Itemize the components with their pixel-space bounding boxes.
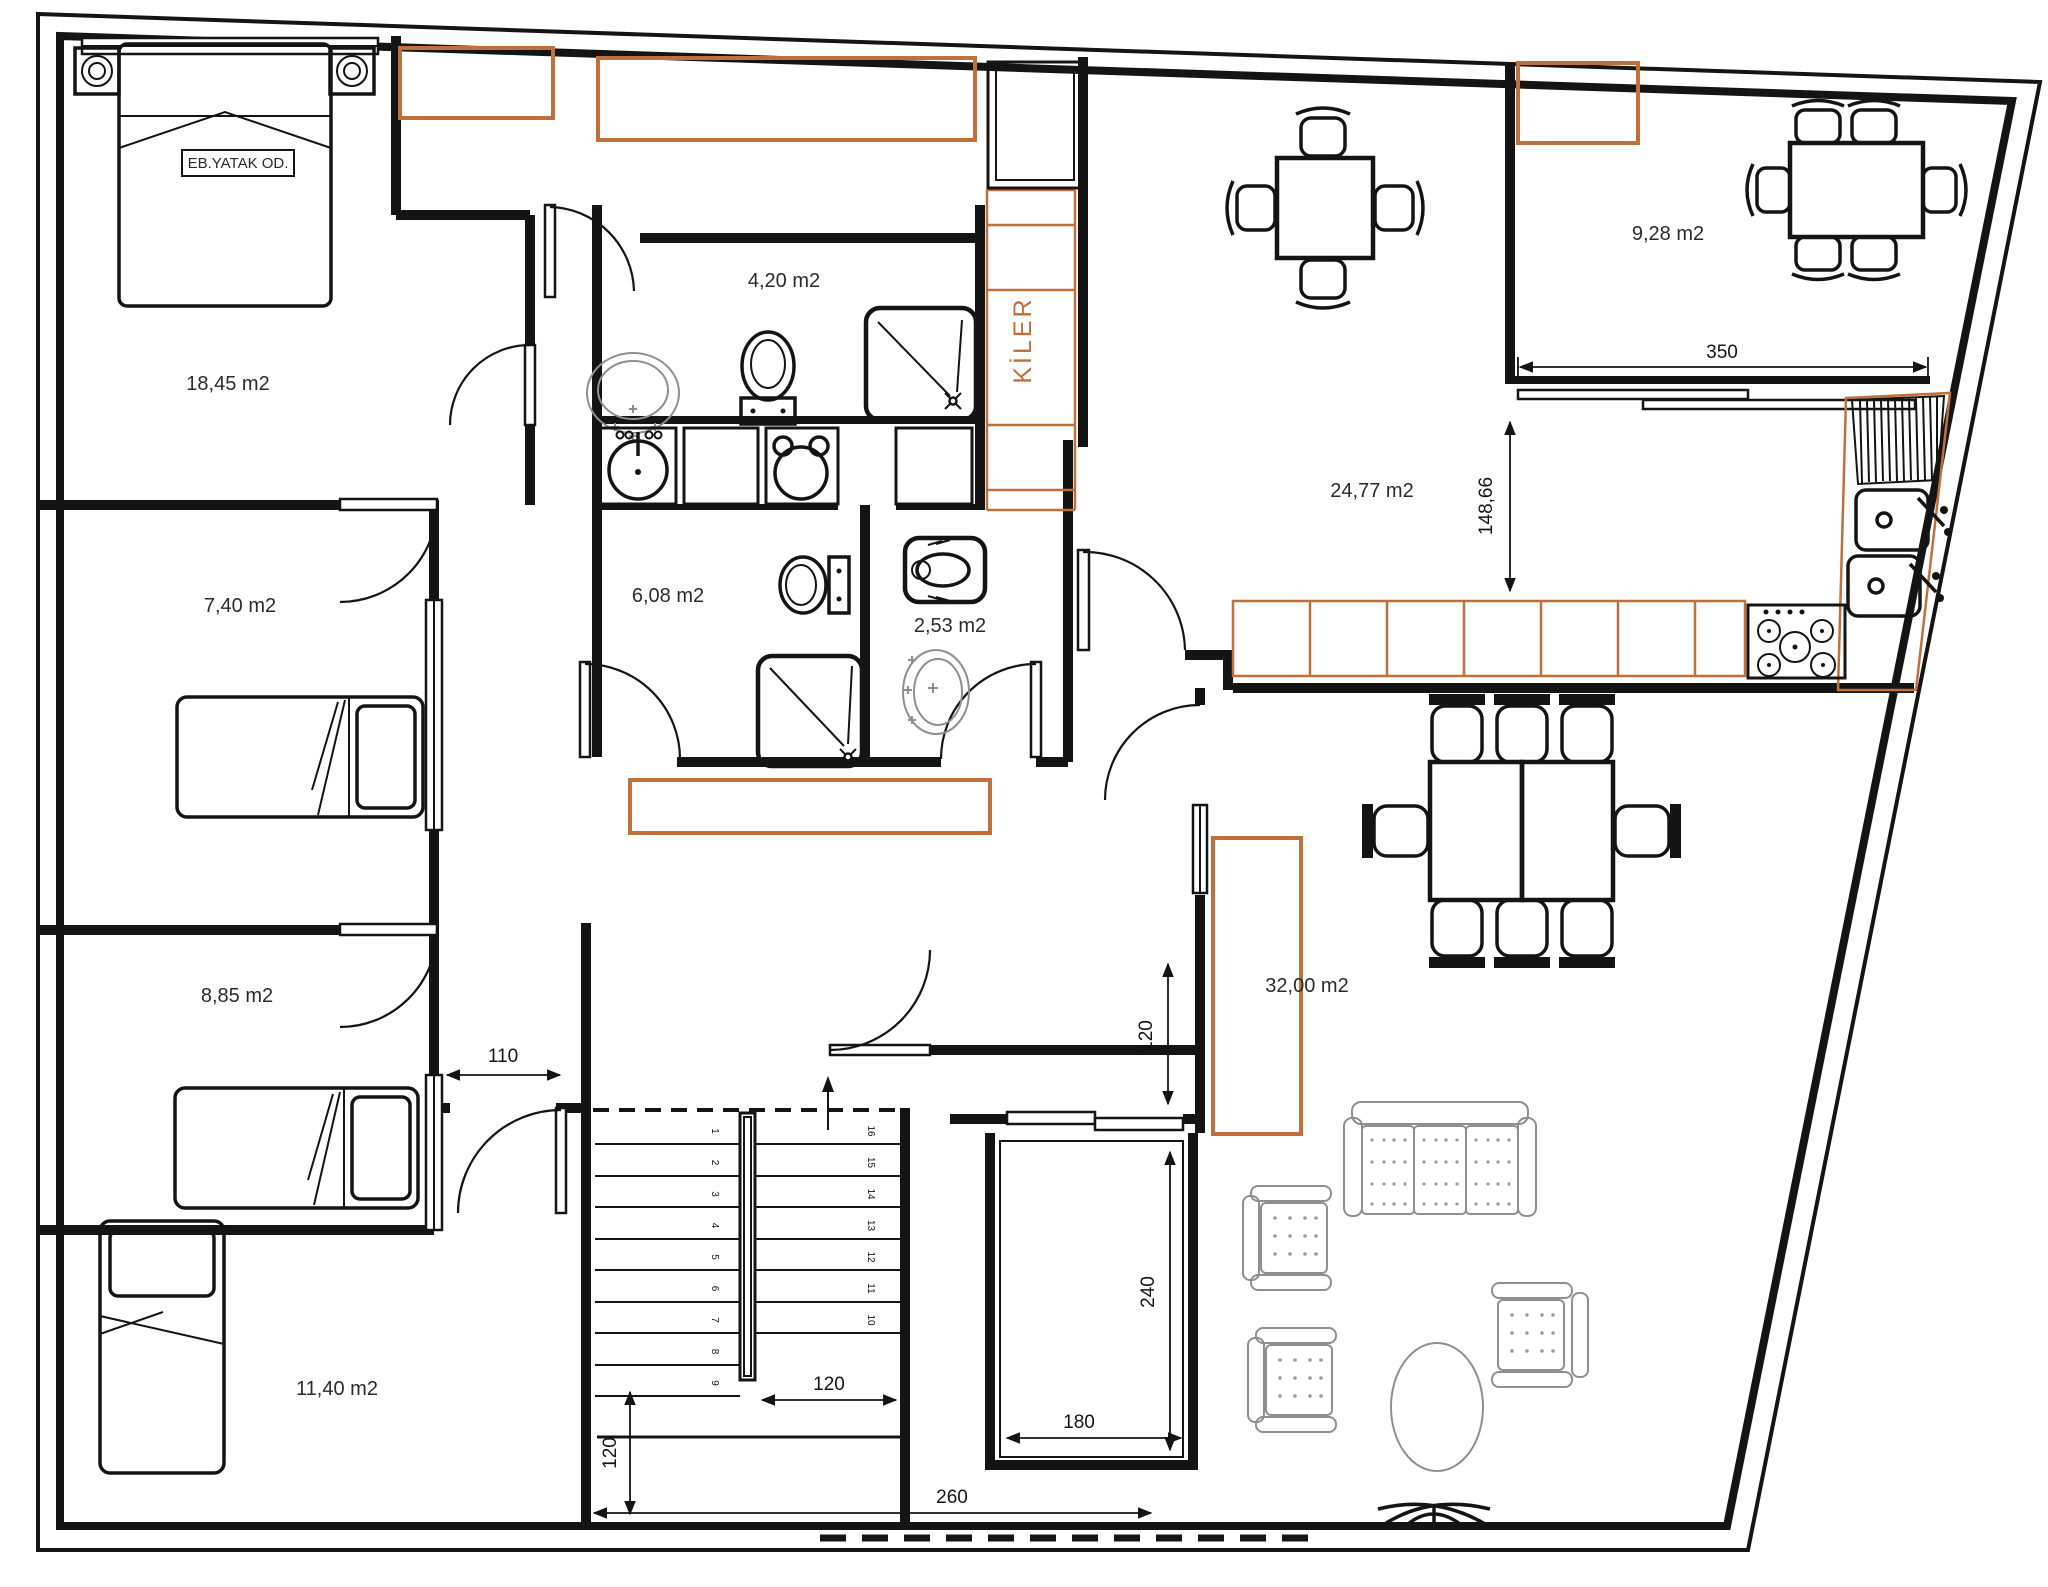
room-wc: 2,53 m2	[903, 538, 986, 734]
stair-step-number: 10	[865, 1314, 876, 1326]
stair-step-number: 11	[865, 1283, 876, 1294]
room-area-label: 11,40 m2	[296, 1378, 378, 1400]
dim-kitchen-depth: 148,66	[1476, 477, 1497, 535]
dining-table-icon	[1227, 108, 1423, 308]
floor-plan-drawing: KİLER EB.YATAK OD. 18,45 m2 4,20 m2	[0, 0, 2048, 1587]
toilet-icon	[741, 332, 795, 424]
room-name-tag: EB.YATAK OD.	[188, 155, 289, 172]
stair-step-number: 1	[709, 1128, 720, 1134]
shower-icon	[866, 308, 976, 420]
stair-numbers-right: 16151413121110	[865, 1125, 876, 1326]
room-bedroom-740: 7,40 m2	[177, 595, 423, 817]
room-master-bedroom: EB.YATAK OD. 18,45 m2	[75, 44, 374, 395]
elevator-door	[1007, 1112, 1183, 1130]
room-balcony: 9,28 m2	[1632, 101, 1966, 280]
dimensions: 110 120 260 120 180 240 120 148,66 350	[447, 342, 1928, 1514]
bedroom-window	[82, 38, 378, 54]
dim-corridor-door: 110	[488, 1046, 518, 1067]
stair-step-number: 6	[709, 1286, 720, 1292]
stair-step-number: 9	[709, 1380, 720, 1386]
dim-landing-height: 120	[1136, 1020, 1157, 1052]
squat-toilet-icon	[905, 538, 985, 602]
bed-icon	[100, 1221, 224, 1473]
dining-table-icon	[1362, 694, 1681, 968]
room-bathroom-mid: 6,08 m2	[632, 557, 862, 766]
kitchen-door	[1078, 550, 1185, 650]
armchair-icon	[1248, 1328, 1336, 1432]
bedroom-740-door	[340, 499, 437, 602]
bed-icon	[177, 697, 423, 817]
stair-step-number: 8	[709, 1349, 720, 1355]
living-window	[1193, 805, 1207, 893]
armchair-icon	[1492, 1283, 1588, 1387]
vanity-counter	[600, 428, 972, 504]
room-living: 32,00 m2	[1243, 694, 1681, 1528]
stair-numbers-left: 123456789	[709, 1128, 720, 1386]
sofa-icon	[1344, 1102, 1536, 1216]
stair-step-number: 7	[709, 1317, 720, 1323]
bed-icon	[175, 1088, 418, 1208]
stair-step-number: 16	[865, 1125, 876, 1137]
dim-stair-depth: 120	[600, 1437, 621, 1469]
staircase: 123456789 16151413121110	[593, 1076, 905, 1437]
shower-icon	[758, 656, 862, 766]
room-area-label: 24,77 m2	[1330, 480, 1413, 502]
kitchen-counter	[1233, 393, 1950, 690]
room-area-label: 9,28 m2	[1632, 223, 1704, 245]
pantry-label: KİLER	[1008, 296, 1037, 383]
dining-table-icon	[1747, 101, 1966, 280]
coffee-table-icon	[1391, 1343, 1483, 1471]
dim-elevator-width: 180	[1063, 1412, 1095, 1433]
hall-bench	[630, 780, 990, 833]
hall-wardrobe-2	[598, 58, 975, 140]
stair-step-number: 13	[865, 1220, 876, 1232]
sink-icon	[609, 432, 667, 500]
stair-step-number: 2	[709, 1160, 720, 1166]
dim-stair-width: 260	[936, 1487, 968, 1508]
sink-icon	[774, 437, 828, 499]
stove-icon	[1748, 605, 1845, 678]
room-area-label: 2,53 m2	[914, 615, 986, 637]
landing-door	[830, 950, 930, 1055]
room-area-label: 18,45 m2	[186, 373, 269, 395]
stair-step-number: 5	[709, 1254, 720, 1260]
corridor-window-2	[426, 1075, 442, 1230]
hall-wardrobe-1	[400, 48, 553, 118]
corridor-window-1	[426, 600, 442, 830]
room-area-label: 7,40 m2	[204, 595, 276, 617]
room-area-label: 8,85 m2	[201, 985, 273, 1007]
room-bedroom-1140: 11,40 m2	[100, 1221, 378, 1473]
stair-step-number: 14	[865, 1188, 876, 1200]
balcony-cabinet	[1518, 63, 1638, 143]
room-area-label: 6,08 m2	[632, 585, 704, 607]
stair-step-number: 4	[709, 1223, 720, 1229]
fridge-icon	[988, 62, 1082, 188]
dim-flight-width: 120	[813, 1374, 845, 1395]
sink-icon	[903, 650, 969, 734]
wc-door	[941, 662, 1041, 759]
armchair-icon	[1243, 1186, 1331, 1290]
corridor-door-110	[458, 1108, 566, 1213]
floor-plan-page: KİLER EB.YATAK OD. 18,45 m2 4,20 m2	[0, 0, 2048, 1587]
master-bedroom-door	[450, 345, 535, 425]
room-bathroom-top: 4,20 m2	[587, 270, 976, 440]
stair-step-number: 3	[709, 1191, 720, 1197]
toilet-icon	[780, 557, 849, 613]
living-room-door	[1105, 705, 1200, 800]
bathroom-420-door	[545, 205, 634, 297]
stair-step-number: 12	[865, 1251, 876, 1263]
outer-walls	[38, 14, 2040, 1550]
stair-step-number: 15	[865, 1157, 876, 1169]
dim-elevator-depth: 240	[1138, 1276, 1159, 1308]
room-area-label: 4,20 m2	[748, 270, 820, 292]
room-area-label: 32,00 m2	[1265, 975, 1348, 997]
stair-up-arrow	[822, 1076, 834, 1130]
dim-balcony-width: 350	[1706, 342, 1738, 363]
bedroom-885-door	[340, 924, 437, 1027]
